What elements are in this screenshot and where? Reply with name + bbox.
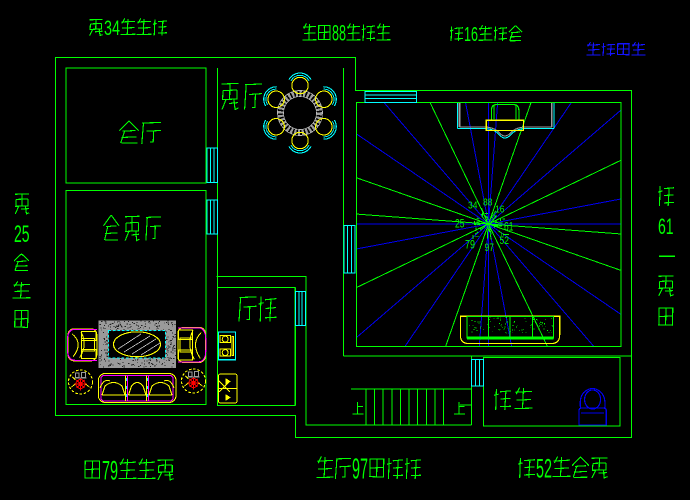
- svg-text:25: 25: [455, 217, 465, 231]
- svg-text:61: 61: [504, 220, 513, 234]
- svg-text:97: 97: [485, 242, 494, 254]
- svg-text:88: 88: [483, 198, 493, 209]
- svg-text:52: 52: [500, 235, 509, 247]
- svg-text:16: 16: [464, 24, 478, 46]
- svg-text:34: 34: [104, 15, 120, 40]
- svg-text:34: 34: [468, 201, 478, 212]
- svg-text:16: 16: [495, 205, 505, 216]
- svg-text:97: 97: [352, 452, 368, 484]
- svg-text:52: 52: [536, 452, 552, 483]
- svg-text:79: 79: [465, 238, 475, 252]
- svg-text:79: 79: [102, 454, 118, 485]
- svg-text:25: 25: [14, 222, 30, 248]
- svg-text:88: 88: [332, 21, 346, 46]
- svg-text:61: 61: [658, 214, 674, 239]
